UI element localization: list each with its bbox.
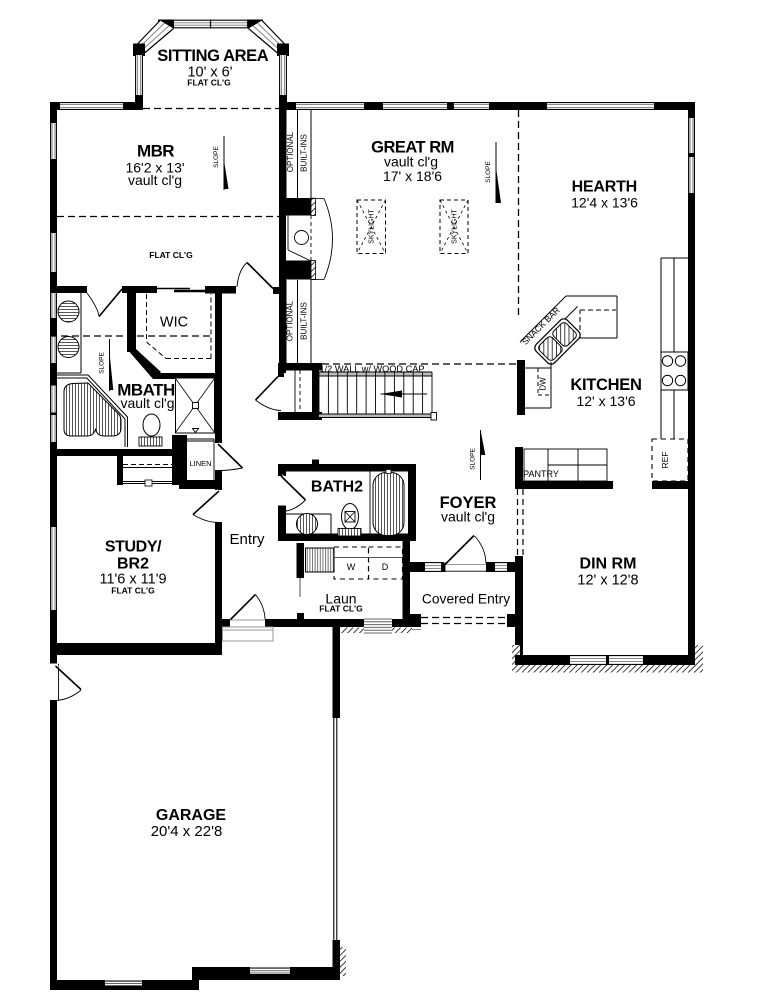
svg-text:17' x 18'6: 17' x 18'6 [383,168,442,184]
svg-text:BR2: BR2 [117,556,149,573]
svg-text:FLAT CL'G: FLAT CL'G [319,604,363,614]
svg-text:SITTING AREA: SITTING AREA [157,47,268,65]
svg-text:BUILT-INS: BUILT-INS [300,134,309,172]
svg-text:12' x 13'6: 12' x 13'6 [576,393,635,409]
svg-text:REF: REF [660,452,670,469]
svg-text:FLAT CL'G: FLAT CL'G [187,78,231,88]
svg-text:W: W [347,562,356,572]
svg-text:PANTRY: PANTRY [523,469,559,479]
svg-text:KITCHEN: KITCHEN [570,376,641,394]
svg-text:FLAT CL'G: FLAT CL'G [111,586,155,596]
svg-text:SLOPE: SLOPE [470,448,477,470]
svg-text:LINEN: LINEN [189,459,211,468]
svg-text:STUDY/: STUDY/ [105,539,162,556]
svg-text:Entry: Entry [229,531,265,548]
svg-text:GARAGE: GARAGE [156,807,227,824]
svg-text:vault cl'g: vault cl'g [441,509,495,525]
svg-text:Covered Entry: Covered Entry [422,592,510,607]
svg-text:20'4 x 22'8: 20'4 x 22'8 [151,823,223,840]
svg-text:OPTIONAL: OPTIONAL [286,300,295,341]
svg-text:vault cl'g: vault cl'g [120,395,174,411]
svg-text:MBR: MBR [137,142,174,161]
svg-text:SLOPE: SLOPE [99,352,106,374]
svg-text:SKYLIGHT: SKYLIGHT [369,208,376,243]
svg-text:SLOPE: SLOPE [485,161,492,183]
svg-text:SKYLIGHT: SKYLIGHT [452,208,459,243]
svg-text:HEARTH: HEARTH [572,179,637,196]
svg-text:BUILT-INS: BUILT-INS [300,302,309,340]
svg-text:OPTIONAL: OPTIONAL [286,131,295,172]
svg-text:BATH2: BATH2 [311,479,363,496]
svg-text:DIN RM: DIN RM [580,556,637,573]
svg-text:DW: DW [539,377,548,391]
svg-text:SLOPE: SLOPE [213,146,220,168]
svg-text:WIC: WIC [160,315,188,331]
svg-text:12'4 x 13'6: 12'4 x 13'6 [571,195,638,211]
svg-text:12' x 12'8: 12' x 12'8 [577,573,638,589]
svg-text:vault cl'g: vault cl'g [128,172,182,188]
svg-text:FLAT CL'G: FLAT CL'G [149,250,193,260]
svg-text:D: D [382,562,389,572]
